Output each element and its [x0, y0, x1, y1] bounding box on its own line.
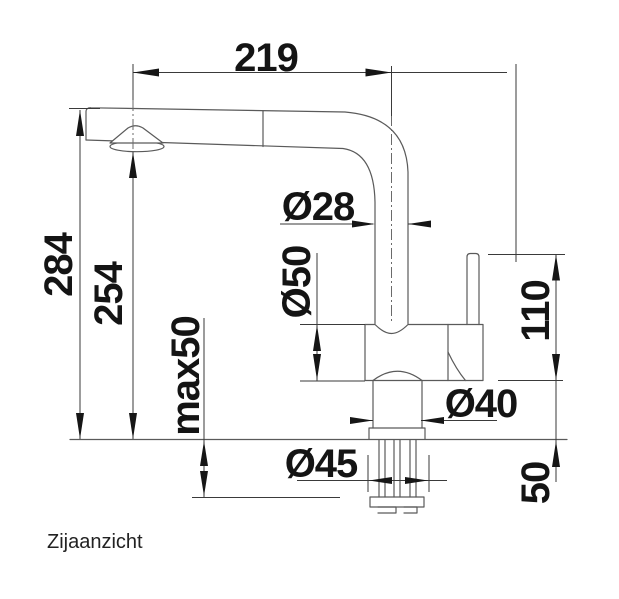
arrowhead-up-icon	[129, 152, 137, 178]
fastening-nut	[370, 497, 424, 507]
nut-feet	[378, 507, 417, 513]
arrowhead-up-icon	[76, 110, 84, 136]
arrowhead-down-icon	[313, 354, 321, 380]
arrowhead-up-icon	[552, 255, 560, 281]
dim-label-spout-reach: 219	[234, 36, 298, 80]
arrowhead-left-icon	[369, 477, 392, 484]
dimension-handle-height: 110	[488, 254, 565, 482]
arrowhead-down-icon	[200, 471, 208, 496]
arrowhead-down-icon	[76, 413, 84, 439]
aerator-nozzle	[110, 126, 163, 143]
mounting-flange	[369, 428, 425, 439]
dimension-spout-height: 254	[87, 152, 137, 439]
faucet-dimension-drawing: 219 284 254 max50 Ø28	[0, 0, 619, 599]
dimension-neck-diameter: Ø40	[350, 382, 517, 426]
arrowhead-left-icon	[133, 69, 159, 77]
faucet-body	[365, 325, 483, 381]
dimension-hole-diameter: Ø45	[285, 442, 447, 492]
dim-label-hole-diameter: Ø45	[285, 442, 358, 486]
dim-label-max-counter: max50	[164, 316, 208, 436]
lever-handle	[467, 254, 479, 325]
technical-drawing-page: 219 284 254 max50 Ø28	[0, 0, 619, 599]
arrowhead-down-icon	[552, 354, 560, 380]
dim-label-total-height: 284	[37, 231, 81, 296]
arrowhead-left-icon	[421, 417, 444, 424]
dim-label-spout-diameter: Ø28	[282, 185, 355, 229]
shank-rods	[379, 440, 416, 497]
neck-shoulder-dome	[373, 371, 422, 380]
dim-label-body-diameter: Ø50	[275, 246, 319, 319]
dimension-body-diameter: Ø50	[275, 246, 365, 381]
arrowhead-up-icon	[313, 325, 321, 351]
dimension-shank-depth: 50	[514, 441, 560, 504]
arrowhead-left-icon	[408, 221, 431, 228]
view-caption: Zijaanzicht	[47, 531, 143, 553]
dim-label-neck-diameter: Ø40	[445, 382, 518, 426]
arrowhead-right-icon	[350, 417, 373, 424]
arrowhead-right-icon	[352, 221, 375, 228]
arrowhead-right-icon	[366, 69, 392, 77]
dim-label-handle-height: 110	[514, 280, 558, 342]
neck-cylinder	[373, 381, 422, 429]
arrowhead-up-icon	[200, 441, 208, 466]
arrowhead-down-icon	[129, 413, 137, 439]
dim-label-spout-height: 254	[87, 260, 131, 325]
dim-label-shank-depth: 50	[514, 462, 558, 505]
lever-joint-line	[448, 352, 466, 381]
